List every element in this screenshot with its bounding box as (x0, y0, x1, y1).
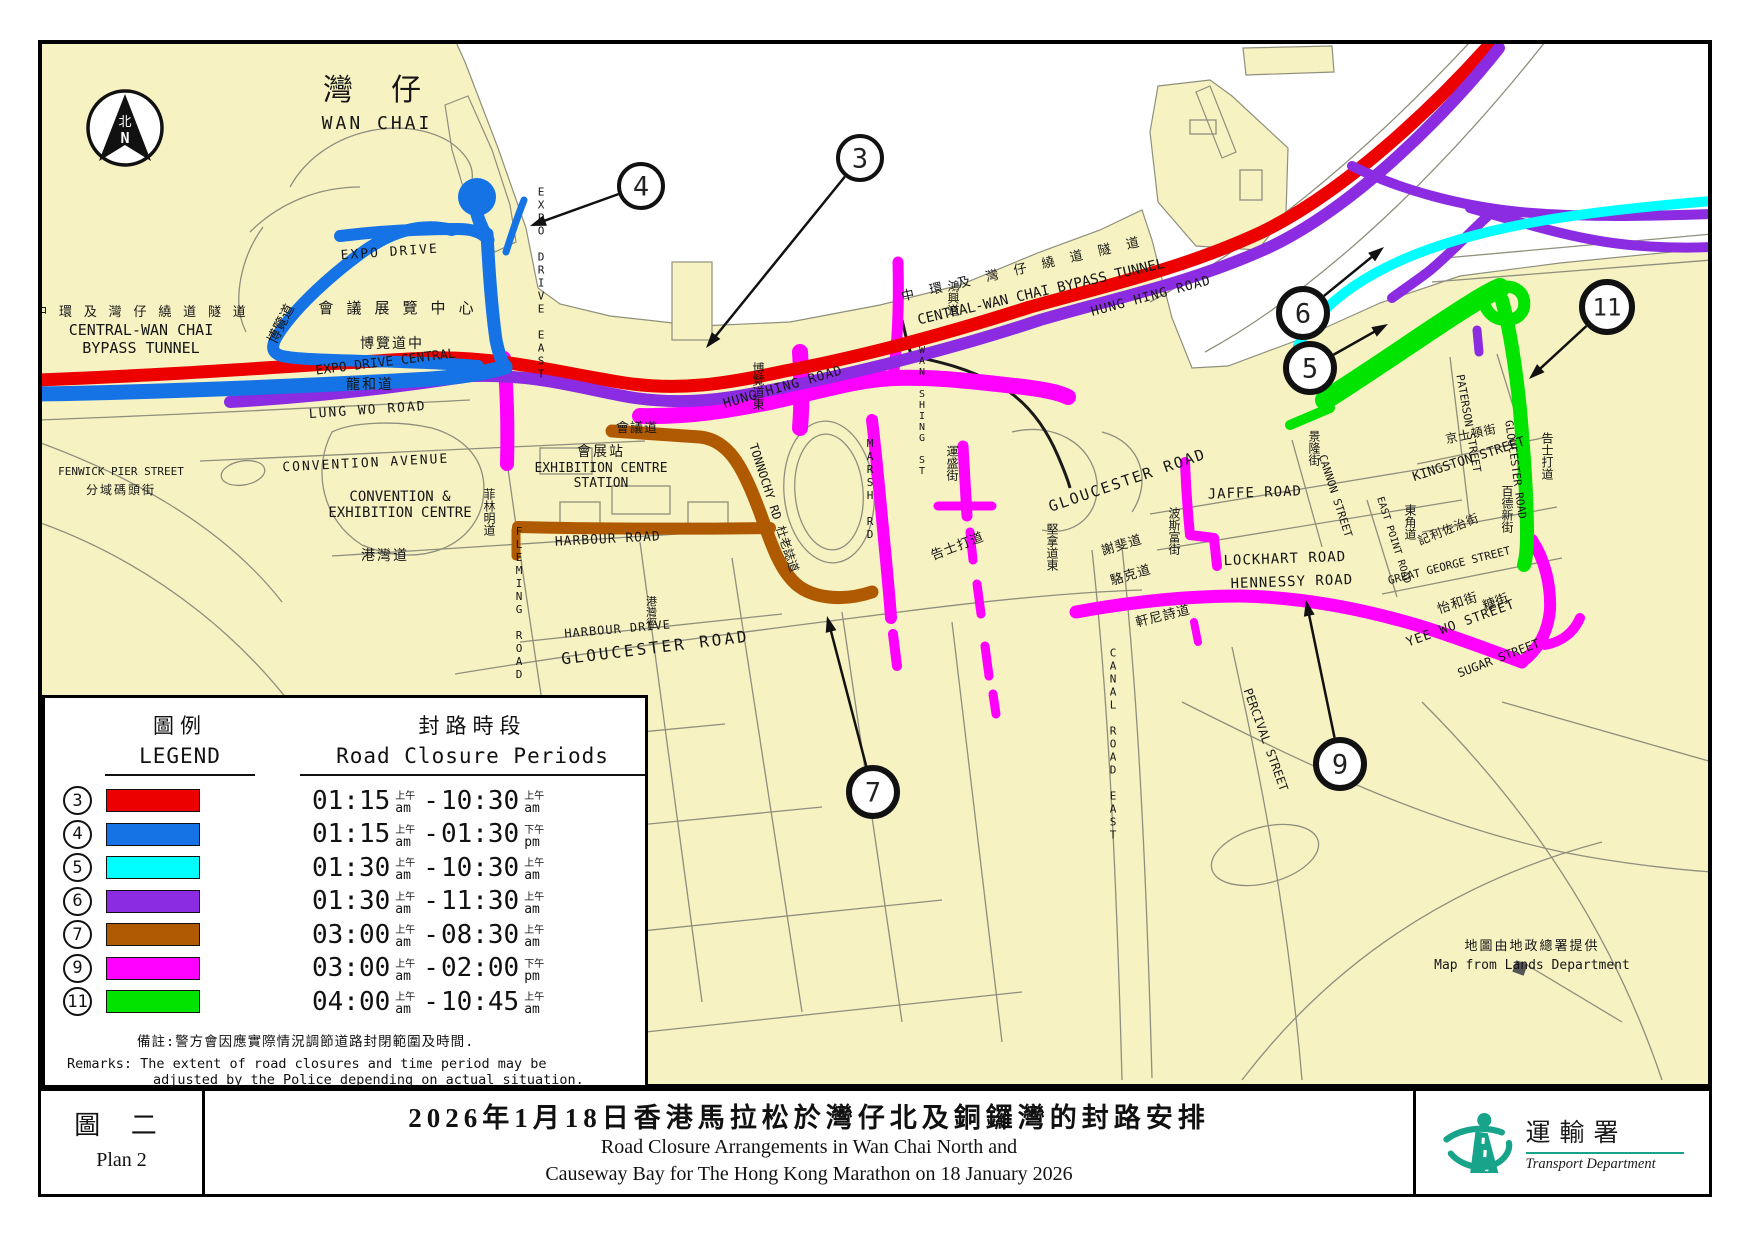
legend-route-number: 7 (63, 920, 92, 949)
legend-row-3: 301:15上午am- 10:30上午am (45, 784, 645, 818)
map-label: CENTRAL-WAN CHAI (69, 321, 214, 339)
legend-route-number: 9 (63, 954, 92, 983)
map-label: 運盛街 (945, 445, 959, 481)
periods-title-zh: 封路時段 (300, 710, 645, 740)
legend-closure-period: 01:30上午am- 11:30上午am (312, 886, 550, 916)
legend-box: 圖例 LEGEND 封路時段 Road Closure Periods 301:… (42, 695, 648, 1088)
legend-row-4: 401:15上午am- 01:30下午pm (45, 818, 645, 852)
legend-closure-period: 01:15上午am- 10:30上午am (312, 786, 550, 816)
legend-route-number: 3 (63, 786, 92, 815)
legend-underline (105, 774, 255, 776)
legend-row-9: 903:00上午am- 02:00下午pm (45, 952, 645, 986)
map-title-en2: Causeway Bay for The Hong Kong Marathon … (205, 1163, 1413, 1186)
map-label: 灣 仔 (323, 73, 431, 108)
legend-closure-period: 03:00上午am- 08:30上午am (312, 920, 550, 950)
map-label: Map from Lands Department (1434, 958, 1630, 973)
dept-name-en: Transport Department (1526, 1156, 1684, 1173)
map-label: JAFFE ROAD (1207, 483, 1302, 502)
svg-text:7: 7 (865, 778, 881, 809)
legend-title-en: LEGEND (75, 744, 285, 768)
legend-color-swatch (106, 923, 200, 946)
plan-number-zh: 圖 二 (41, 1105, 202, 1142)
map-label: STATION (574, 476, 629, 491)
plan-cell: 圖 二 Plan 2 (41, 1091, 205, 1194)
map-label: 博覽道中 (360, 335, 424, 352)
title-bar: 圖 二 Plan 2 2026年1月18日香港馬拉松於灣仔北及銅鑼灣的封路安排 … (38, 1088, 1712, 1197)
map-label: 百德新街 (1500, 485, 1514, 533)
map-title-en1: Road Closure Arrangements in Wan Chai No… (205, 1136, 1413, 1159)
transport-department-logo-icon (1442, 1106, 1516, 1180)
map-label: 分域碼頭街 (86, 483, 156, 497)
map-label: 龍和道 (346, 376, 394, 393)
svg-text:3: 3 (852, 144, 868, 175)
svg-text:11: 11 (1593, 294, 1622, 322)
map-label: CONVENTION & (349, 489, 451, 505)
legend-row-11: 1104:00上午am- 10:45上午am (45, 985, 645, 1019)
periods-underline (300, 774, 645, 776)
map-label: WAN SHING ST (917, 345, 928, 477)
legend-color-swatch (106, 856, 200, 879)
dept-name-zh: 運輸署 (1526, 1113, 1684, 1149)
svg-text:5: 5 (1302, 354, 1318, 385)
map-label: 會 議 展 覽 中 心 (318, 299, 475, 317)
legend-color-swatch (106, 990, 200, 1013)
map-label: 波斯富街 (1167, 507, 1181, 555)
legend-closure-period: 01:15上午am- 01:30下午pm (312, 819, 550, 849)
map-label: MARSH RD (864, 437, 877, 541)
north-compass: 北 N (88, 91, 162, 165)
map-label: EXHIBITION CENTRE (534, 461, 667, 476)
svg-text:9: 9 (1332, 750, 1348, 781)
map-label: 中 環 及 灣 仔 繞 道 隧 道 (42, 304, 248, 320)
map-label: CANAL ROAD EAST (1107, 647, 1120, 842)
compass-north-en: N (120, 129, 129, 147)
legend-remark-en1: Remarks: The extent of road closures and… (67, 1056, 547, 1072)
map-label: 告士打道 (1540, 432, 1554, 480)
map-label: 堅拿道東 (1045, 523, 1059, 571)
legend-remark-zh: 備註:警方會因應實際情況調節道路封閉範圍及時間. (137, 1030, 474, 1050)
compass-north-zh: 北 (118, 115, 131, 130)
title-cell: 2026年1月18日香港馬拉松於灣仔北及銅鑼灣的封路安排 Road Closur… (205, 1091, 1416, 1194)
map-label: 會展站 (577, 444, 625, 460)
svg-text:6: 6 (1295, 299, 1311, 330)
legend-route-number: 6 (63, 887, 92, 916)
map-label: FENWICK PIER STREET (58, 465, 184, 478)
svg-text:4: 4 (633, 172, 649, 203)
legend-color-swatch (106, 957, 200, 980)
legend-closure-period: 03:00上午am- 02:00下午pm (312, 953, 550, 983)
legend-route-number: 5 (63, 853, 92, 882)
map-label: 地圖由地政總署提供 (1464, 938, 1599, 954)
map-label: BYPASS TUNNEL (82, 339, 199, 357)
periods-title-en: Road Closure Periods (300, 744, 645, 768)
map-label: EXHIBITION CENTRE (328, 505, 471, 521)
map-title-zh: 2026年1月18日香港馬拉松於灣仔北及銅鑼灣的封路安排 (205, 1096, 1413, 1135)
legend-route-number: 11 (63, 987, 92, 1016)
legend-closure-period: 04:00上午am- 10:45上午am (312, 987, 550, 1017)
legend-color-swatch (106, 890, 200, 913)
legend-title-zh: 圖例 (75, 710, 285, 740)
map-label: EXPO DRIVE EAST (535, 186, 548, 381)
legend-row-6: 601:30上午am- 11:30上午am (45, 885, 645, 919)
legend-color-swatch (106, 823, 200, 846)
dept-rule (1526, 1152, 1684, 1154)
legend-row-5: 501:30上午am- 10:30上午am (45, 851, 645, 885)
legend-route-number: 4 (63, 820, 92, 849)
map-label: 菲林明道 (482, 488, 496, 536)
map-label: FLEMING ROAD (513, 525, 526, 681)
legend-color-swatch (106, 789, 200, 812)
map-label: 會議道 (616, 421, 658, 436)
plan-number-en: Plan 2 (41, 1149, 202, 1172)
transport-department-cell: 運輸署 Transport Department (1416, 1091, 1709, 1194)
map-label: WAN CHAI (322, 113, 433, 134)
legend-closure-period: 01:30上午am- 10:30上午am (312, 853, 550, 883)
legend-remark-en2: adjusted by the Police depending on actu… (153, 1072, 584, 1088)
map-label: 港灣道 (361, 548, 409, 564)
legend-row-7: 703:00上午am- 08:30上午am (45, 918, 645, 952)
legend-rows: 301:15上午am- 10:30上午am401:15上午am- 01:30下午… (45, 784, 645, 1019)
